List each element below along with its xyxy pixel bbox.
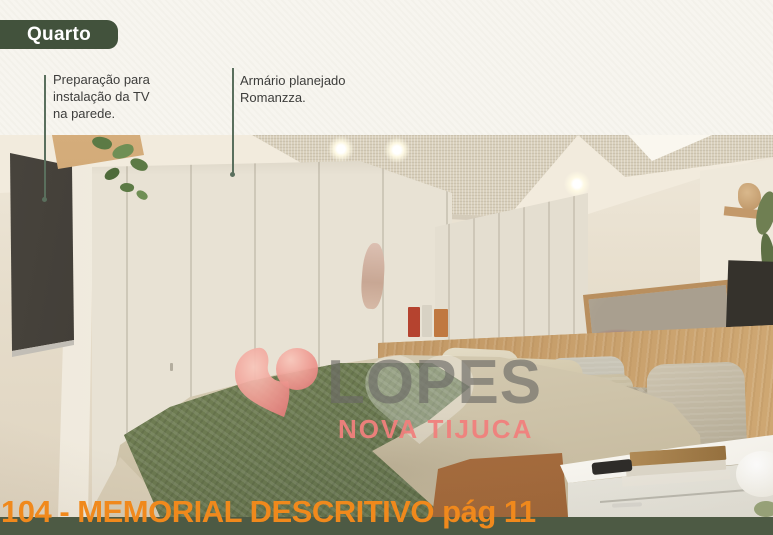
footer-title: 104 - MEMORIAL DESCRITIVO pág 11 (1, 495, 536, 528)
annotation-wardrobe-text: Armário planejado Romanzza. (240, 72, 346, 106)
annotation-tv-leader-dot (42, 197, 47, 202)
lopes-heart-logo (233, 346, 323, 420)
watermark-location: NOVA TIJUCA (338, 416, 533, 442)
memorial-descritivo-page: { "document": { "section_badge": "Quarto… (0, 0, 773, 535)
section-badge-label: Quarto (27, 24, 91, 46)
bedroom-render-photo: LOPES NOVA TIJUCA (0, 135, 773, 517)
photo-vignette (0, 135, 773, 517)
annotation-tv-leader-line (44, 75, 46, 199)
annotation-tv-text: Preparação para instalação da TV na pare… (53, 71, 150, 122)
annotation-wardrobe-leader-dot (230, 172, 235, 177)
section-badge: Quarto (0, 20, 118, 49)
watermark-brand: LOPES (327, 352, 542, 414)
annotation-wardrobe-leader-line (232, 68, 234, 174)
